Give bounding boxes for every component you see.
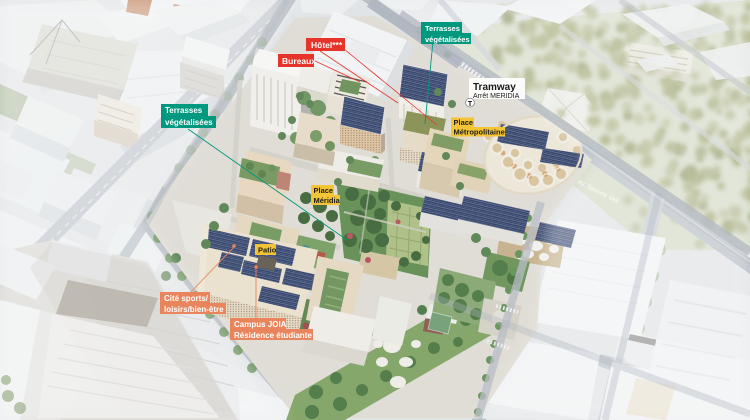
svg-text:Place: Place <box>454 118 474 127</box>
svg-text:Terrasses: Terrasses <box>165 106 203 115</box>
svg-text:Bureaux: Bureaux <box>282 56 316 66</box>
svg-text:Méridia: Méridia <box>314 196 341 205</box>
svg-text:Terrasses: Terrasses <box>425 24 460 33</box>
svg-text:Métropolitaine: Métropolitaine <box>454 128 505 137</box>
svg-text:T: T <box>468 101 473 108</box>
svg-text:Place: Place <box>314 186 334 195</box>
svg-text:loisirs/bien-être: loisirs/bien-être <box>164 305 224 314</box>
svg-text:végétalisées: végétalisées <box>165 118 213 127</box>
svg-text:végétalisées: végétalisées <box>425 35 470 44</box>
svg-text:Résidence étudiante: Résidence étudiante <box>234 331 312 340</box>
svg-text:Tramway: Tramway <box>473 82 516 93</box>
svg-text:Cité sports/: Cité sports/ <box>164 294 209 303</box>
svg-text:Campus JOIA: Campus JOIA <box>234 320 287 329</box>
svg-text:Hôtel***: Hôtel*** <box>311 40 343 50</box>
svg-text:Patio: Patio <box>258 246 277 255</box>
svg-text:Arrêt MERIDIA: Arrêt MERIDIA <box>473 93 520 100</box>
